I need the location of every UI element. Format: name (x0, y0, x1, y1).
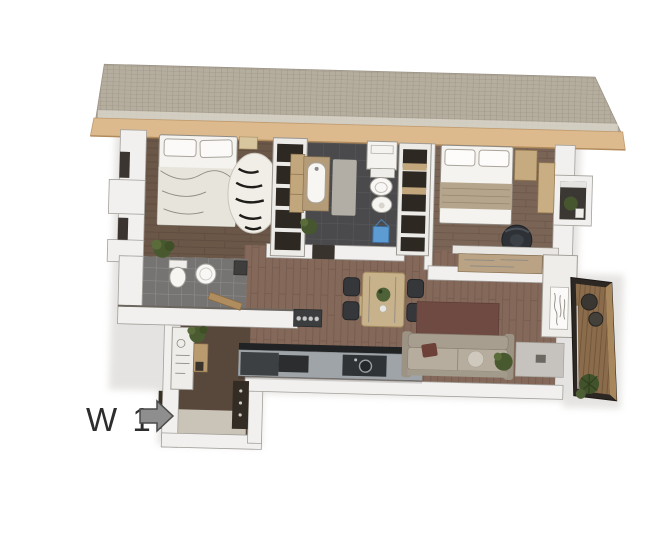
wardrobe-shelving-right (396, 143, 431, 256)
nightstand (239, 137, 257, 149)
toilet-2 (168, 260, 187, 287)
pillow (479, 150, 509, 167)
bidet (372, 196, 392, 213)
bathroom-1-bottom-wall (334, 245, 404, 261)
wardrobe-shelving-left (270, 138, 307, 257)
bathroom-2-left-wall (118, 256, 143, 313)
washing-machine (367, 141, 398, 170)
dining-table (362, 272, 405, 327)
pillow (164, 139, 196, 157)
entry-bottom-wall (161, 433, 261, 450)
bath-rug (331, 159, 356, 216)
dining-chair (343, 302, 359, 320)
vanity-sink (303, 156, 330, 211)
living-rug (416, 302, 499, 338)
dining-chair (343, 278, 359, 296)
throw-blanket (468, 351, 484, 367)
balcony-pouf (589, 312, 603, 326)
bed-1 (157, 135, 237, 227)
bathroom-1-door-opening (312, 245, 334, 260)
water-heater (234, 261, 247, 275)
bed-2 (439, 145, 513, 225)
floor-plan-render: W 1 (0, 0, 670, 550)
wall-niche-shelf (559, 181, 586, 220)
dining-chair (407, 279, 423, 297)
round-sink (196, 264, 217, 285)
balcony (568, 278, 620, 401)
window-slit-2 (118, 218, 129, 240)
pillow (445, 149, 475, 166)
kitchen-counter (238, 343, 423, 384)
oven (240, 352, 279, 376)
dresser (514, 150, 537, 181)
coffee-machine (294, 309, 322, 327)
cooktop (278, 355, 308, 373)
throw-pillow (421, 343, 438, 358)
tv-lowboard (515, 342, 564, 377)
side-cabinet (538, 163, 555, 213)
pillow (200, 140, 232, 158)
left-wall-pilaster-1 (108, 179, 145, 214)
entry-shelf (193, 344, 208, 372)
balcony-pouf (581, 294, 597, 310)
entry-dark-cabinet (232, 381, 249, 429)
window-slit-1 (119, 152, 130, 178)
building (82, 64, 629, 459)
kitchen-sink (342, 355, 387, 377)
